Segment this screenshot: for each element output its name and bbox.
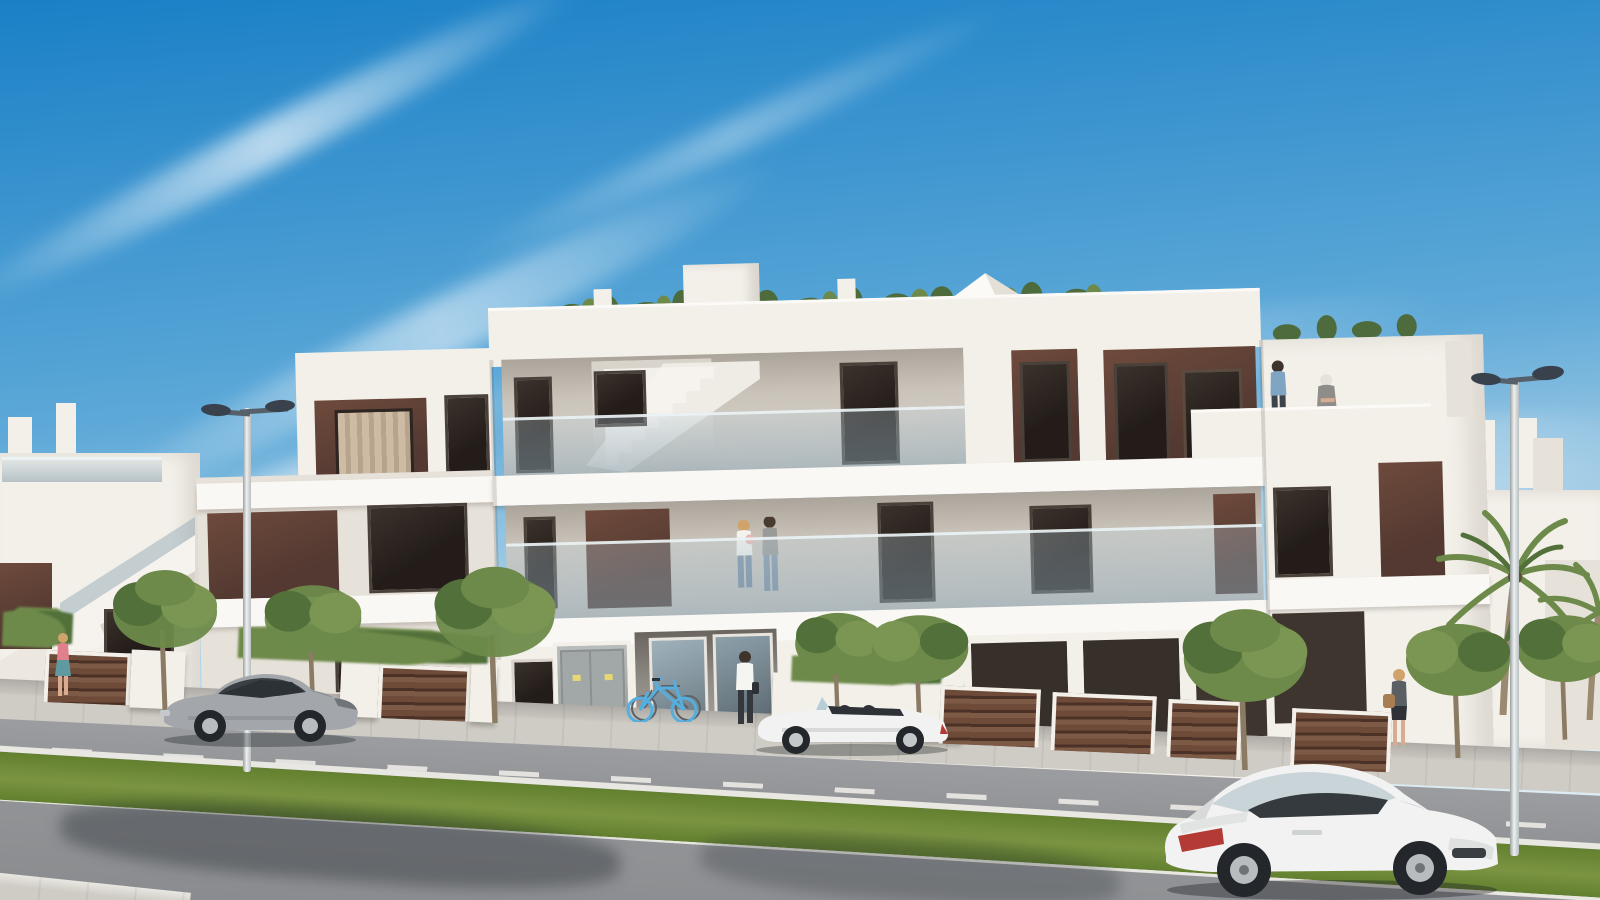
stone-fence-panel bbox=[1050, 692, 1156, 754]
bicycles bbox=[622, 666, 714, 722]
white-convertible bbox=[752, 682, 957, 757]
lamp-head bbox=[200, 396, 296, 426]
lamp-head bbox=[1468, 362, 1564, 394]
street-tree bbox=[415, 558, 575, 723]
left-walker-woman bbox=[50, 632, 76, 700]
lamp-pole bbox=[1510, 378, 1519, 856]
gray-coupe bbox=[158, 660, 363, 748]
street-tree bbox=[1165, 600, 1325, 770]
architectural-render bbox=[0, 0, 1600, 900]
right-walker-woman bbox=[1382, 668, 1416, 754]
white-coupe bbox=[1152, 752, 1504, 900]
